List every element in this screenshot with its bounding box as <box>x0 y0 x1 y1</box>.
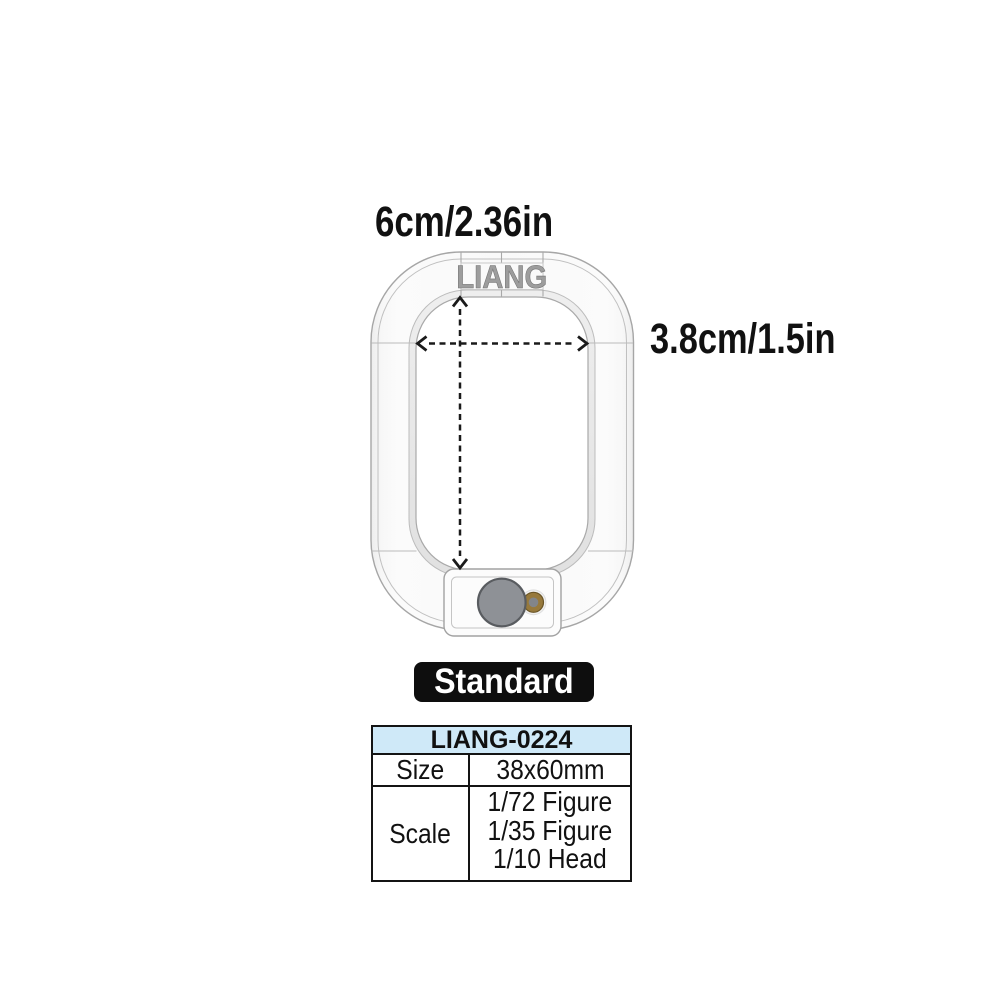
svg-text:LIANG: LIANG <box>456 259 547 296</box>
